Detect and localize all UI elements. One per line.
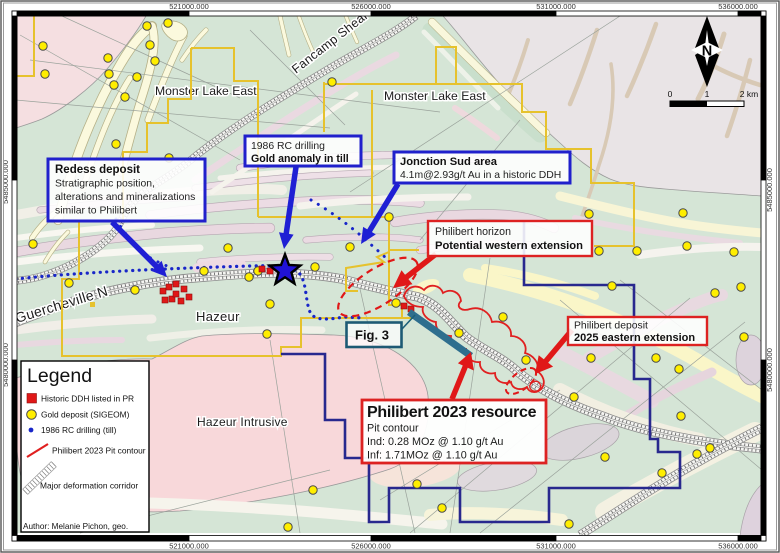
svg-text:Philibert deposit: Philibert deposit [574, 321, 648, 332]
svg-text:Hazeur Intrusive: Hazeur Intrusive [197, 415, 288, 429]
svg-text:Gold deposit (SIGEOM): Gold deposit (SIGEOM) [41, 410, 130, 420]
svg-text:531000.000: 531000.000 [536, 542, 576, 551]
svg-text:Inf: 1.71MOz @ 1.10 g/t Au: Inf: 1.71MOz @ 1.10 g/t Au [367, 450, 497, 462]
svg-text:Legend: Legend [27, 365, 92, 387]
svg-text:Redess deposit: Redess deposit [55, 164, 140, 176]
svg-text:Monster Lake East: Monster Lake East [384, 89, 486, 103]
svg-text:1986 RC drilling: 1986 RC drilling [251, 141, 325, 152]
svg-text:Philibert 2023 resource: Philibert 2023 resource [367, 404, 537, 421]
svg-text:Gold anomaly in till: Gold anomaly in till [251, 153, 349, 165]
svg-text:Hazeur: Hazeur [196, 309, 240, 324]
svg-text:Monster Lake East: Monster Lake East [155, 84, 257, 98]
svg-text:Fig. 3: Fig. 3 [355, 328, 389, 343]
svg-text:Philibert horizon: Philibert horizon [435, 226, 511, 238]
svg-text:Stratigraphic position,: Stratigraphic position, [55, 179, 155, 190]
svg-text:Pit contour: Pit contour [367, 423, 419, 435]
svg-text:5485000.000: 5485000.000 [1, 160, 10, 204]
svg-text:521000.000: 521000.000 [169, 542, 209, 551]
svg-text:0: 0 [668, 89, 673, 99]
svg-text:Ind: 0.28 MOz @ 1.10 g/t Au: Ind: 0.28 MOz @ 1.10 g/t Au [367, 436, 503, 448]
svg-text:alterations and mineralization: alterations and mineralizations [55, 192, 195, 203]
svg-text:Major deformation corridor: Major deformation corridor [40, 481, 138, 491]
svg-text:536000.000: 536000.000 [718, 542, 758, 551]
svg-text:N: N [702, 44, 712, 60]
svg-text:4.1m@2.93g/t Au in a historic: 4.1m@2.93g/t Au in a historic DDH [400, 170, 561, 181]
svg-text:2 km: 2 km [740, 89, 758, 99]
svg-text:Author: Melanie Pichon, geo.: Author: Melanie Pichon, geo. [23, 522, 128, 531]
svg-text:1986 RC drilling (till): 1986 RC drilling (till) [41, 425, 117, 435]
svg-text:similar to Philibert: similar to Philibert [55, 206, 137, 217]
svg-text:5480000.000: 5480000.000 [1, 343, 10, 387]
svg-text:2025 eastern extension: 2025 eastern extension [574, 332, 695, 344]
svg-text:Potential western extension: Potential western extension [435, 240, 583, 252]
svg-text:Jonction Sud area: Jonction Sud area [400, 156, 498, 168]
svg-text:Philibert 2023 Pit contour: Philibert 2023 Pit contour [52, 446, 146, 456]
svg-text:5485000.000: 5485000.000 [765, 168, 774, 212]
svg-text:526000.000: 526000.000 [351, 542, 391, 551]
svg-text:Historic DDH listed in PR: Historic DDH listed in PR [41, 394, 134, 404]
svg-text:5480000.000: 5480000.000 [765, 348, 774, 392]
svg-text:1: 1 [705, 89, 710, 99]
